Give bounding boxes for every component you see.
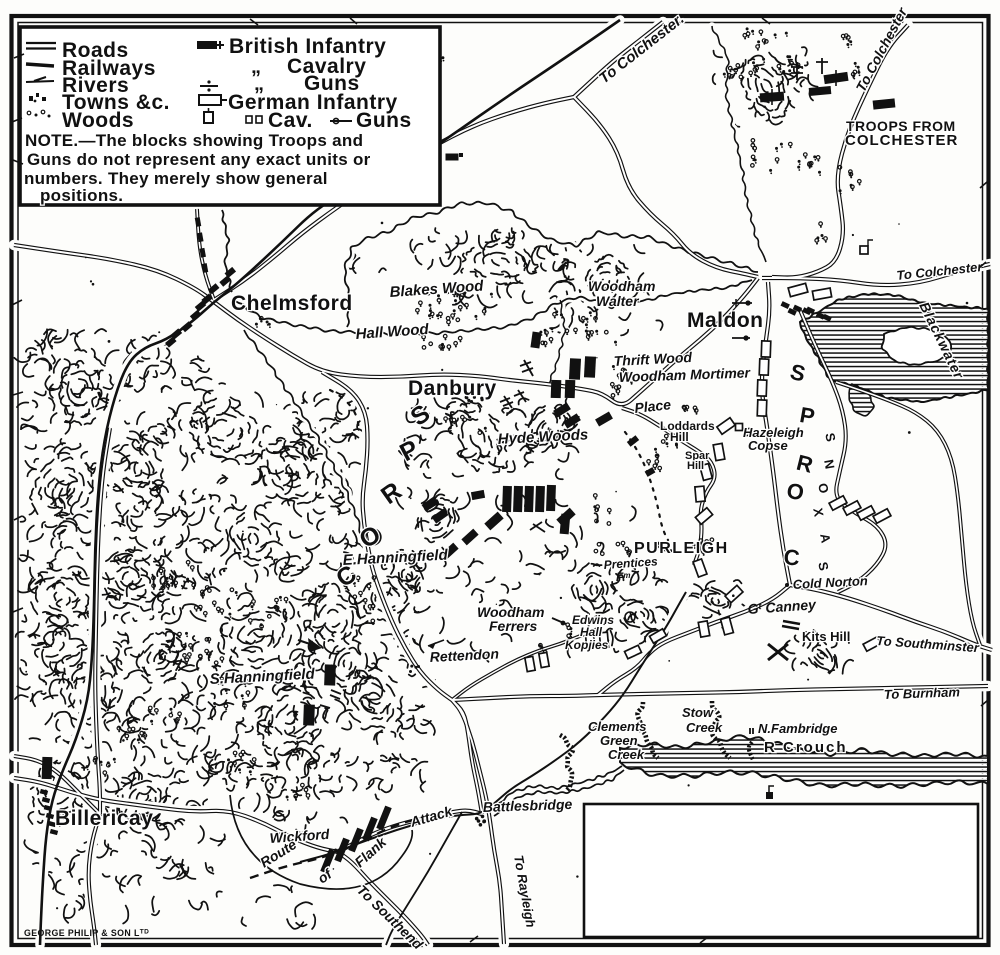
svg-text:To Burnham: To Burnham xyxy=(884,684,961,702)
svg-text:Battlesbridge: Battlesbridge xyxy=(483,796,573,815)
svg-text:Kopjies: Kopjies xyxy=(565,638,609,652)
svg-text:Clements: Clements xyxy=(588,719,647,734)
svg-text:Danbury: Danbury xyxy=(408,377,497,400)
svg-text:Billericay: Billericay xyxy=(55,807,153,830)
svg-text:Copse: Copse xyxy=(748,438,788,453)
svg-text:Maldon: Maldon xyxy=(687,309,764,332)
svg-text:Walter: Walter xyxy=(596,293,640,309)
svg-text:Hill: Hill xyxy=(687,460,704,472)
svg-text:C: C xyxy=(783,544,801,570)
svg-text:Guns do not represent any exac: Guns do not represent any exact units or xyxy=(27,150,371,169)
svg-text:R Crouch: R Crouch xyxy=(764,739,848,756)
svg-text:Stow: Stow xyxy=(682,705,714,720)
svg-text:Ferrers: Ferrers xyxy=(489,618,537,634)
svg-text:Chelmsford: Chelmsford xyxy=(231,292,353,315)
svg-text:PURLEIGH: PURLEIGH xyxy=(634,540,729,557)
svg-text:Cav.: Cav. xyxy=(268,109,313,132)
svg-text:Woodham: Woodham xyxy=(588,278,655,294)
svg-text:N.Fambridge: N.Fambridge xyxy=(758,721,837,736)
svg-text:GEORGE PHILIP & SON LTD: GEORGE PHILIP & SON LTD xyxy=(24,928,149,938)
svg-text:Hall: Hall xyxy=(580,625,603,639)
svg-text:Hill: Hill xyxy=(670,430,689,444)
svg-text:Green: Green xyxy=(600,733,638,748)
svg-text:NOTE.—The blocks showing Troop: NOTE.—The blocks showing Troops and xyxy=(25,131,363,150)
svg-text:Kits Hill: Kits Hill xyxy=(802,629,850,644)
svg-text:COLCHESTER: COLCHESTER xyxy=(845,132,958,149)
svg-text:Woods: Woods xyxy=(62,109,134,132)
svg-text:Creek: Creek xyxy=(608,747,645,762)
svg-text:Guns: Guns xyxy=(356,109,412,132)
svg-text:Creek: Creek xyxy=(686,720,723,735)
svg-text:positions.: positions. xyxy=(40,186,123,205)
